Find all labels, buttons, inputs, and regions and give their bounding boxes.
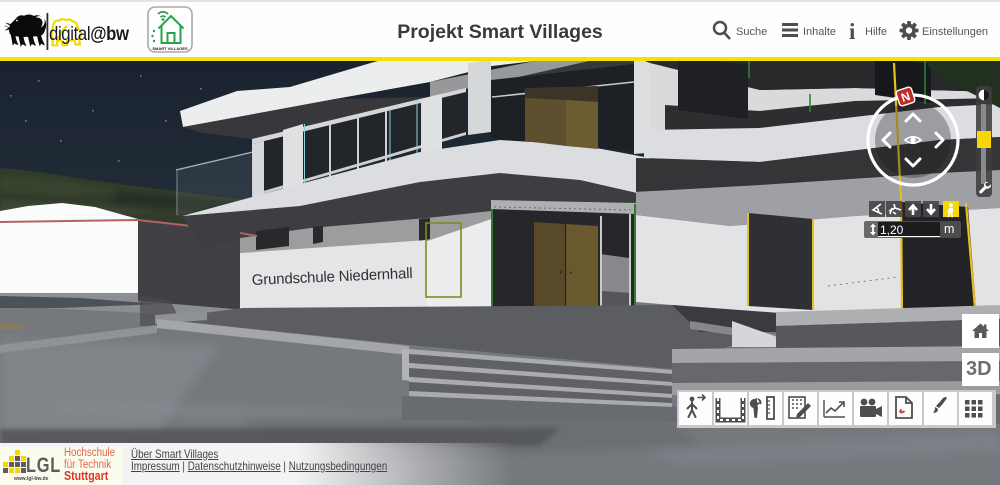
svg-text:i: i: [849, 19, 856, 44]
svg-text:SMART VILLAGES: SMART VILLAGES: [152, 46, 188, 51]
